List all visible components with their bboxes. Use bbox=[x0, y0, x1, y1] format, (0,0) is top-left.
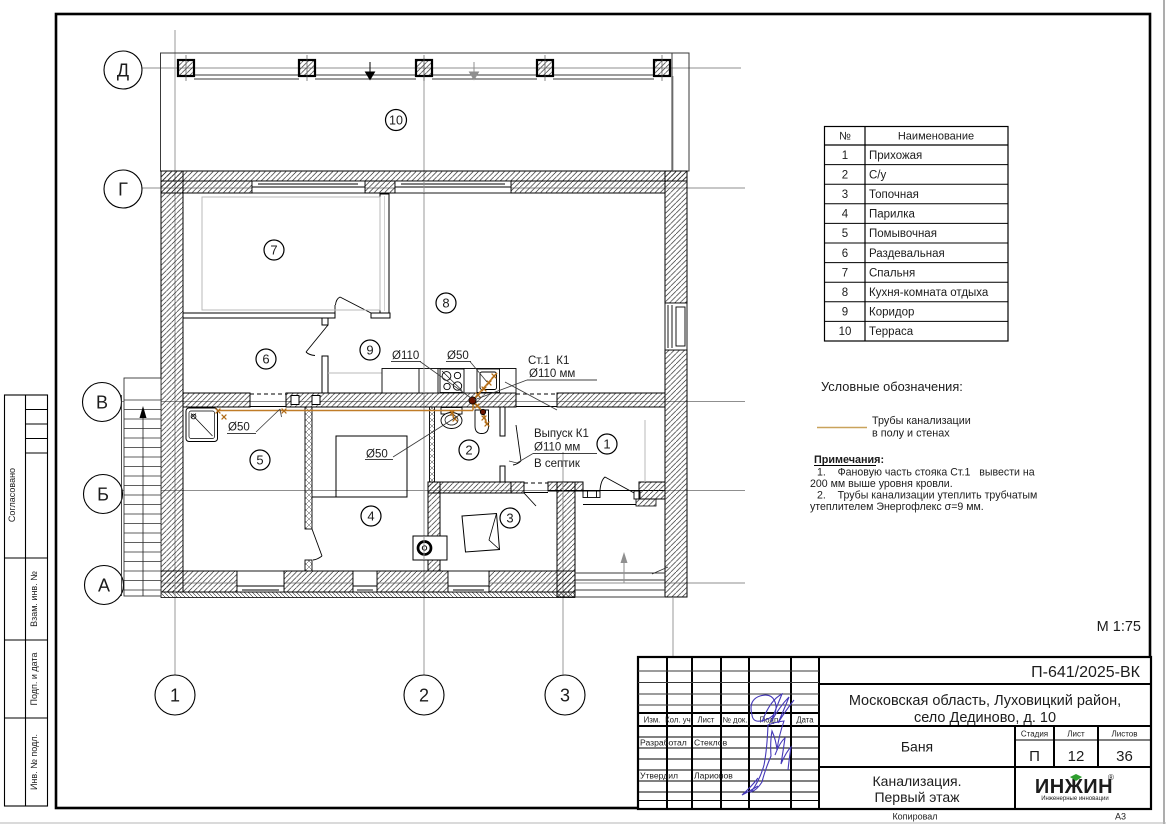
svg-text:10: 10 bbox=[839, 326, 852, 338]
svg-text:3: 3 bbox=[560, 686, 570, 706]
svg-text:Наименование: Наименование bbox=[898, 131, 974, 143]
svg-text:Инв. № подл.: Инв. № подл. bbox=[29, 734, 39, 790]
svg-text:9: 9 bbox=[842, 307, 848, 319]
svg-text:Утвердил: Утвердил bbox=[640, 771, 678, 781]
svg-text:6: 6 bbox=[842, 248, 848, 260]
svg-text:5: 5 bbox=[256, 453, 263, 468]
svg-text:1: 1 bbox=[842, 150, 848, 162]
svg-text:Ø110 мм: Ø110 мм bbox=[529, 368, 575, 380]
svg-text:3: 3 bbox=[506, 511, 513, 526]
svg-text:10: 10 bbox=[389, 114, 403, 128]
svg-text:Выпуск К1: Выпуск К1 bbox=[534, 428, 589, 440]
svg-text:Лист: Лист bbox=[698, 716, 715, 725]
svg-text:Ø110 мм: Ø110 мм bbox=[534, 442, 580, 454]
svg-text:Б: Б bbox=[97, 485, 109, 505]
svg-text:12: 12 bbox=[1068, 748, 1085, 765]
svg-text:Листов: Листов bbox=[1112, 730, 1138, 739]
svg-text:1: 1 bbox=[170, 686, 180, 706]
svg-text:2: 2 bbox=[465, 443, 472, 458]
svg-text:П-641/2025-ВК: П-641/2025-ВК bbox=[1031, 664, 1141, 681]
svg-text:Раздевальная: Раздевальная bbox=[869, 248, 945, 260]
svg-text:№: № bbox=[839, 131, 851, 143]
svg-text:Условные обозначения:: Условные обозначения: bbox=[821, 379, 963, 394]
svg-text:село Дединово, д. 10: село Дединово, д. 10 bbox=[914, 710, 1056, 726]
svg-text:Г: Г bbox=[118, 180, 128, 200]
svg-text:1. Фановую часть стояка Ст.: 1. Фановую часть стояка Ст.1 вывести на bbox=[817, 467, 1035, 479]
svg-text:Стадия: Стадия bbox=[1021, 730, 1048, 739]
svg-text:200 мм выше уровня кровли.: 200 мм выше уровня кровли. bbox=[810, 478, 953, 490]
svg-text:Ø110: Ø110 bbox=[392, 350, 419, 362]
svg-text:8: 8 bbox=[442, 296, 449, 311]
svg-text:9: 9 bbox=[366, 343, 373, 358]
svg-text:Московская область, Луховицкий: Московская область, Луховицкий район, bbox=[849, 693, 1121, 709]
svg-text:Лист: Лист bbox=[1067, 730, 1085, 739]
svg-text:8: 8 bbox=[842, 287, 848, 299]
svg-text:Взам. инв. №: Взам. инв. № bbox=[29, 571, 39, 627]
svg-text:Первый этаж: Первый этаж bbox=[874, 789, 960, 805]
svg-text:Стеклов: Стеклов bbox=[694, 738, 728, 748]
svg-text:6: 6 bbox=[262, 352, 269, 367]
svg-text:2. Трубы канализации утепли: 2. Трубы канализации утеплить трубчатым bbox=[817, 490, 1037, 502]
svg-text:Копировал: Копировал bbox=[892, 812, 937, 822]
svg-text:®: ® bbox=[1108, 773, 1114, 782]
svg-text:В септик: В септик bbox=[534, 458, 581, 470]
svg-text:Ст.1 К1: Ст.1 К1 bbox=[528, 355, 569, 367]
svg-text:Терраса: Терраса bbox=[869, 326, 914, 338]
svg-text:2: 2 bbox=[842, 169, 848, 181]
svg-text:Прихожая: Прихожая bbox=[869, 150, 922, 162]
svg-text:А: А bbox=[98, 576, 110, 596]
svg-text:Дата: Дата bbox=[796, 716, 814, 725]
svg-text:Кухня-комната отдыха: Кухня-комната отдыха bbox=[869, 287, 989, 299]
svg-text:Баня: Баня bbox=[901, 739, 933, 755]
svg-text:А3: А3 bbox=[1115, 812, 1126, 822]
svg-text:Ларионов: Ларионов bbox=[694, 771, 733, 781]
svg-text:Д: Д bbox=[117, 61, 129, 81]
svg-text:Разработал: Разработал bbox=[640, 738, 687, 748]
svg-text:В: В bbox=[96, 393, 108, 413]
svg-text:Подп. и дата: Подп. и дата bbox=[29, 652, 39, 705]
svg-text:Ø50: Ø50 bbox=[447, 350, 469, 362]
svg-text:Инженерные инновации: Инженерные инновации bbox=[1041, 796, 1109, 802]
svg-text:7: 7 bbox=[270, 243, 277, 258]
svg-text:№ док.: № док. bbox=[723, 716, 748, 725]
svg-text:П: П bbox=[1029, 748, 1040, 765]
svg-text:5: 5 bbox=[842, 228, 848, 240]
svg-text:Изм.: Изм. bbox=[644, 716, 661, 725]
svg-text:Канализация.: Канализация. bbox=[873, 773, 962, 789]
svg-text:С/у: С/у bbox=[869, 169, 887, 181]
svg-text:Топочная: Топочная bbox=[869, 189, 919, 201]
svg-text:Трубы канализации: Трубы канализации bbox=[872, 415, 971, 427]
svg-text:36: 36 bbox=[1116, 748, 1133, 765]
svg-text:2: 2 bbox=[419, 686, 429, 706]
svg-text:7: 7 bbox=[842, 267, 848, 279]
svg-text:4: 4 bbox=[367, 509, 374, 524]
svg-text:М 1:75: М 1:75 bbox=[1097, 619, 1141, 635]
svg-text:Парилка: Парилка bbox=[869, 209, 915, 221]
svg-text:Примечания:: Примечания: bbox=[814, 454, 884, 466]
svg-text:Коридор: Коридор bbox=[869, 307, 914, 319]
svg-text:Кол. уч.: Кол. уч. bbox=[665, 716, 693, 725]
svg-text:Спальня: Спальня bbox=[869, 267, 915, 279]
svg-text:Помывочная: Помывочная bbox=[869, 228, 937, 240]
svg-text:3: 3 bbox=[842, 189, 848, 201]
svg-text:Ø50: Ø50 bbox=[366, 449, 388, 461]
svg-text:утеплителем Энергофлекс σ=9 мм: утеплителем Энергофлекс σ=9 мм. bbox=[810, 501, 984, 513]
svg-text:в полу и стенах: в полу и стенах bbox=[872, 428, 950, 440]
svg-text:Ø50: Ø50 bbox=[228, 422, 250, 434]
svg-text:4: 4 bbox=[842, 209, 849, 221]
svg-text:Согласовано: Согласовано bbox=[7, 468, 17, 522]
svg-text:1: 1 bbox=[603, 437, 610, 452]
